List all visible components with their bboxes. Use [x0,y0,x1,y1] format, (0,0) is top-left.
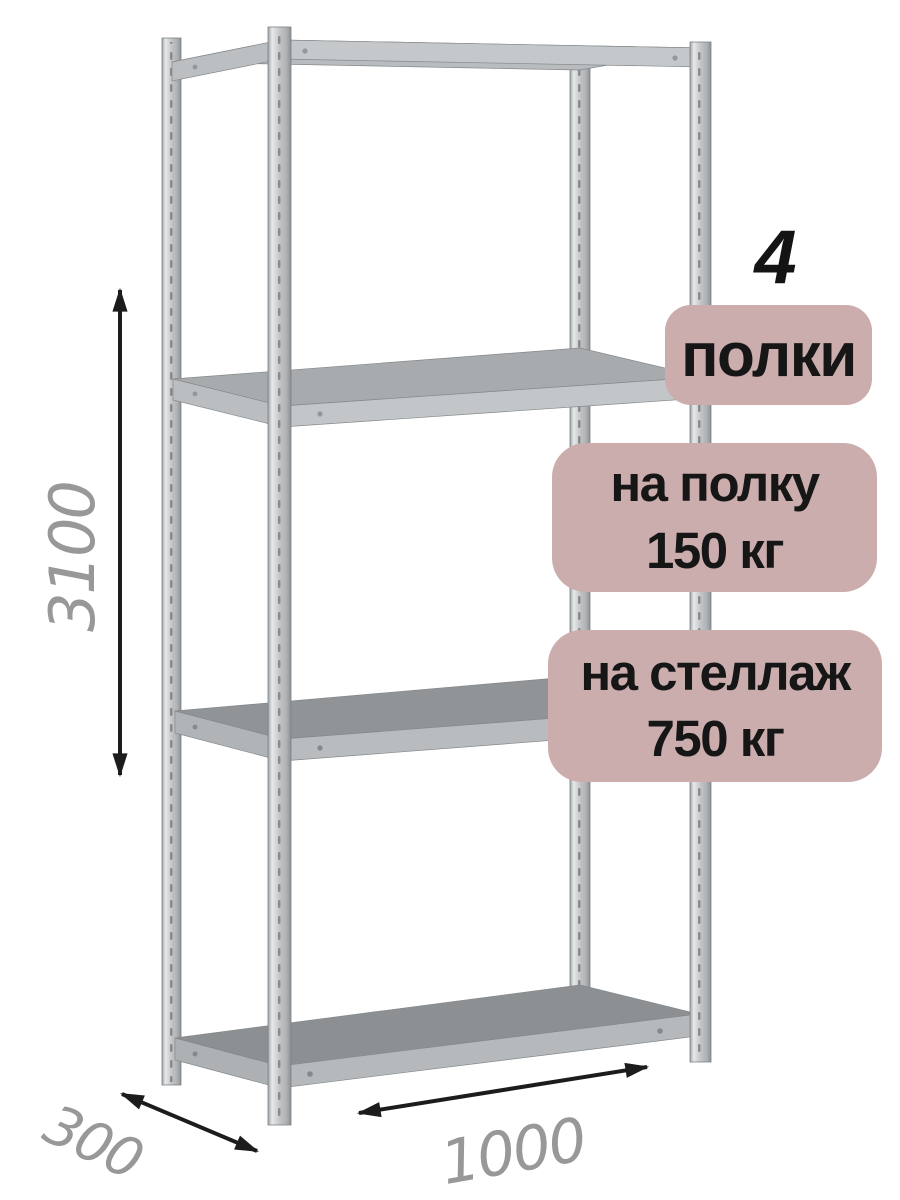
shelving-rack-drawing [0,0,900,1200]
per-rack-load-badge: на стеллаж 750 кг [548,630,882,782]
rack-post-front-left [268,27,291,1125]
rack-shelf-2 [173,348,703,427]
per-rack-load-line1: на стеллаж [580,640,849,706]
per-shelf-load-badge: на полку 150 кг [552,443,877,592]
product-illustration: 3100 300 1000 4 полки на полку 150 кг на… [0,0,900,1200]
shelf-count-number: 4 [718,226,833,290]
rack-post-back-left [162,38,181,1085]
rack-shelf-1 [172,40,703,81]
shelf-count-badge-label: полки [681,320,856,391]
height-dimension-label: 3100 [37,446,107,668]
per-rack-load-line2: 750 кг [646,706,783,772]
shelf-count-badge: полки [665,305,872,405]
per-shelf-load-line2: 150 кг [646,518,783,584]
per-shelf-load-line1: на полку [610,451,818,517]
